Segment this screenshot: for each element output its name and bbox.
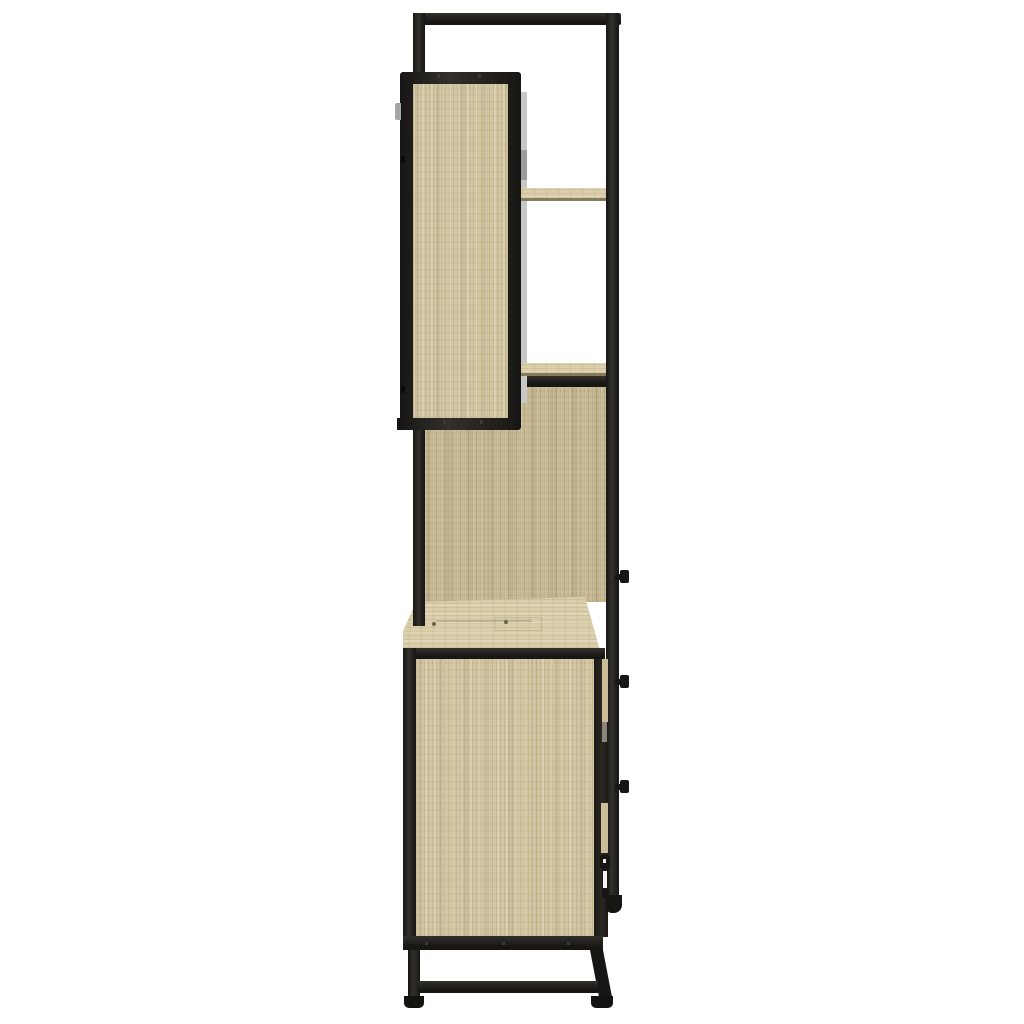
frame-screw: [480, 420, 483, 424]
product-photo-stage: [0, 0, 1024, 1024]
hinge-pin: [401, 386, 405, 393]
top-dowel-hole: [432, 622, 436, 626]
hinge-pin: [401, 156, 405, 163]
handle-knob-hole: [603, 859, 606, 863]
left-foot: [404, 996, 424, 1008]
upper-shelf: [521, 188, 614, 201]
top-cutout-outline: [495, 617, 542, 631]
lower-shelf: [521, 363, 614, 376]
side-panel-sliver: [601, 803, 608, 853]
corner-bracket: [397, 418, 403, 430]
mirror-glass-edge: [520, 92, 527, 403]
door-knob: [620, 780, 629, 793]
top-dowel-hole: [504, 620, 508, 624]
mirror-glass-shadow: [520, 150, 527, 180]
wall-frame-top-bar: [413, 13, 621, 25]
hinge-bump: [395, 103, 401, 120]
frame-screw: [437, 74, 440, 78]
handle-slot: [603, 871, 607, 888]
mirror-cabinet: [400, 72, 521, 430]
rail-screw: [425, 942, 428, 945]
shelf-support-bar: [527, 376, 614, 387]
door-knob: [620, 675, 629, 688]
rail-screw: [567, 942, 570, 945]
side-panel-sliver: [602, 659, 608, 722]
mirror-cabinet-side-panel: [413, 84, 508, 418]
frame-screw: [443, 420, 446, 424]
side-panel-shadow: [602, 722, 607, 742]
frame-foot-cap: [606, 895, 622, 913]
base-cabinet-bottom-rail: [403, 936, 603, 950]
base-cabinet-left-frame: [403, 648, 416, 950]
base-cabinet-side-panel: [416, 659, 597, 937]
door-knob: [620, 570, 629, 583]
right-foot: [591, 996, 613, 1008]
rail-screw: [502, 942, 505, 945]
leg-stretcher-bar: [418, 981, 598, 993]
frame-screw: [478, 74, 481, 78]
